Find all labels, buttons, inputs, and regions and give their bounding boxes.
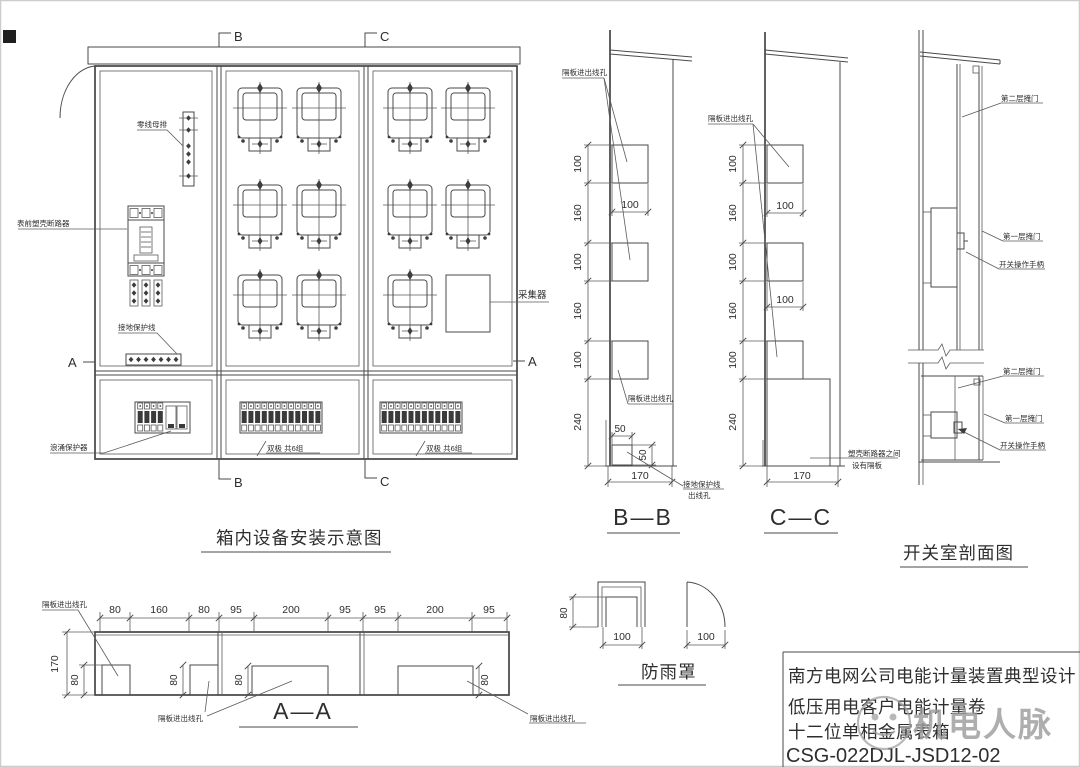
section-flag-top-b: B bbox=[219, 29, 243, 47]
handle-top-label: 开关操作手柄 bbox=[999, 259, 1044, 269]
cc-hole-2 bbox=[767, 243, 803, 281]
marker-top-b: B bbox=[234, 29, 243, 44]
bb-title: B—B bbox=[613, 504, 673, 530]
collector-callout: 采集器 bbox=[490, 289, 549, 302]
section-aa-view: 80 160 80 95 200 95 95 200 95 170 80 80 bbox=[42, 599, 586, 727]
section-flag-top-c: C bbox=[365, 29, 389, 47]
cc-dim-base: 170 bbox=[764, 466, 841, 487]
section-cc-view: 100 160 100 160 100 240 100 100 170 隔板进出… bbox=[708, 32, 901, 533]
rc-dim-100-right: 100 bbox=[684, 630, 728, 649]
aa-dim-4: 200 bbox=[282, 604, 300, 616]
aa-dim-3: 95 bbox=[230, 604, 242, 616]
cc-label-top: 隔板进出线孔 bbox=[708, 113, 753, 123]
aa-title: A—A bbox=[273, 698, 333, 724]
surge-label: 浪涌保护器 bbox=[50, 442, 88, 452]
aa-dim-1: 160 bbox=[150, 604, 168, 616]
cc-dim-v2: 100 bbox=[727, 253, 739, 271]
cc-note: 塑壳断路器之间 设有隔板 bbox=[810, 448, 901, 470]
breaker-row-right bbox=[380, 402, 462, 433]
cc-dim-v3: 160 bbox=[727, 302, 739, 320]
cabinet-top-cap bbox=[88, 47, 520, 64]
cc-hole-3 bbox=[767, 341, 803, 379]
aa-hole-2 bbox=[190, 665, 218, 695]
cc-breaker-box bbox=[767, 379, 830, 466]
aa-label-bottom-right: 隔板进出线孔 bbox=[530, 713, 575, 723]
rain-cover-view: 80 100 100 防雨罩 bbox=[559, 582, 728, 685]
aa-dim-7: 200 bbox=[426, 604, 444, 616]
bb-label-top: 隔板进出线孔 bbox=[562, 67, 607, 77]
bb-dim-base: 170 bbox=[631, 470, 649, 482]
aa-dim-80-h4: 80 bbox=[480, 674, 491, 686]
cc-dim-v0: 100 bbox=[727, 155, 739, 173]
handle-bot-label: 开关操作手柄 bbox=[1000, 440, 1045, 450]
title-block-line1: 南方电网公司电能计量装置典型设计 bbox=[788, 666, 1076, 686]
bb-dim-w: 100 bbox=[621, 199, 639, 211]
section-marker-a-left: A bbox=[68, 355, 95, 370]
aa-left-dims: 170 80 bbox=[49, 629, 102, 698]
rc-dim-w-left: 100 bbox=[613, 631, 631, 643]
sw-callout-door2-bot: 第二层掩门 bbox=[958, 366, 1044, 388]
aa-box bbox=[95, 632, 509, 695]
aa-dim-8: 95 bbox=[483, 604, 495, 616]
drawing-canvas: B C 零线母排 bbox=[0, 0, 1080, 767]
cc-hole-1 bbox=[767, 145, 803, 183]
aa-dim-80-h2: 80 bbox=[169, 674, 180, 686]
aa-dim-2: 80 bbox=[198, 604, 210, 616]
bb-hole-1 bbox=[612, 145, 648, 183]
aa-dim-80-left: 80 bbox=[70, 674, 81, 686]
aa-hole-4 bbox=[398, 666, 473, 695]
watermark-text: 机电人脉 bbox=[913, 706, 1053, 743]
door1-top-label: 第一层掩门 bbox=[1003, 231, 1041, 241]
neutral-busbar-callout: 零线母排 bbox=[137, 119, 183, 146]
rain-cover-title: 防雨罩 bbox=[641, 662, 697, 682]
aa-label-top: 隔板进出线孔 bbox=[42, 599, 87, 609]
aa-dim-0: 80 bbox=[109, 604, 121, 616]
rc-dim-80: 80 bbox=[559, 594, 606, 630]
bb-dim-base: 170 bbox=[605, 466, 675, 487]
cc-note-2: 设有隔板 bbox=[852, 460, 882, 470]
cc-dim-w1: 100 bbox=[776, 200, 794, 212]
section-flag-bottom-b: B bbox=[219, 459, 243, 490]
collector-label: 采集器 bbox=[518, 289, 547, 301]
mccb-label: 表前塑壳断路器 bbox=[17, 218, 70, 228]
ground-wire-label: 接地保护线 bbox=[118, 322, 156, 332]
bb-dim-50v: 50 bbox=[638, 449, 649, 461]
breaker-right-label: 双极 共6组 bbox=[426, 443, 463, 453]
sw-callout-handle-top: 开关操作手柄 bbox=[966, 252, 1045, 269]
aa-top-dims: 80 160 80 95 200 95 95 200 95 bbox=[97, 604, 510, 632]
aa-dim-80-h3: 80 bbox=[234, 674, 245, 686]
cc-dim-w2: 100 bbox=[776, 294, 794, 306]
marker-top-c: C bbox=[380, 29, 389, 44]
ground-wire-callout: 接地保护线 bbox=[118, 322, 177, 354]
bb-hole-2 bbox=[612, 243, 648, 281]
switch-room-title: 开关室剖面图 bbox=[903, 543, 1014, 563]
bb-label-bottom-2: 出线孔 bbox=[688, 490, 711, 500]
surge-callout: 浪涌保护器 bbox=[50, 431, 171, 453]
aa-callout-bottom-right: 隔板进出线孔 bbox=[467, 681, 586, 723]
cc-title: C—C bbox=[770, 504, 832, 530]
rc-dim-h: 80 bbox=[559, 607, 570, 619]
switch-room-view: 第二层掩门 第一层掩门 开关操作手柄 第二层掩门 第一层掩门 开关操作手柄 bbox=[900, 30, 1046, 567]
door2-bot-label: 第二层掩门 bbox=[1003, 366, 1041, 376]
sw-callout-handle-bot: 开关操作手柄 bbox=[958, 428, 1046, 450]
main-front-view: B C 零线母排 bbox=[17, 29, 549, 552]
rc-dim-100-left: 100 bbox=[600, 627, 645, 649]
mccb-device bbox=[128, 206, 164, 306]
rc-door-arc bbox=[687, 582, 725, 627]
rc-dim-w-right: 100 bbox=[697, 631, 715, 643]
door2-top-label: 第二层掩门 bbox=[1001, 93, 1039, 103]
ground-bar bbox=[126, 354, 181, 365]
cc-dim-base: 170 bbox=[793, 470, 811, 482]
marker-bottom-c: C bbox=[380, 474, 389, 489]
section-bb-view: 100 160 100 160 100 240 100 50 50 bbox=[562, 30, 724, 533]
aa-label-bottom: 隔板进出线孔 bbox=[158, 713, 203, 723]
switch-device-lower bbox=[923, 412, 962, 438]
section-flag-bottom-c: C bbox=[365, 459, 389, 489]
bb-dim-v5: 240 bbox=[572, 413, 584, 431]
sw-callout-door1-bot: 第一层掩门 bbox=[984, 413, 1044, 423]
cc-dim-chain: 100 160 100 160 100 240 bbox=[727, 142, 767, 469]
aa-dim-5: 95 bbox=[339, 604, 351, 616]
cc-dim-v1: 160 bbox=[727, 204, 739, 222]
bb-ground-hole bbox=[612, 445, 632, 465]
bb-dim-50h: 50 bbox=[614, 424, 626, 435]
bb-label-mid: 隔板进出线孔 bbox=[628, 393, 673, 403]
aa-hole-3 bbox=[252, 666, 328, 695]
bb-dim-v3: 160 bbox=[572, 302, 584, 320]
cc-note-1: 塑壳断路器之间 bbox=[848, 448, 901, 458]
door-swing-arc bbox=[60, 66, 97, 118]
aa-dim-170: 170 bbox=[49, 655, 61, 673]
neutral-busbar bbox=[179, 112, 198, 186]
cad-drawing: B C 零线母排 bbox=[0, 0, 1080, 767]
marker-right-a: A bbox=[528, 354, 537, 369]
cc-callout-top: 隔板进出线孔 bbox=[708, 113, 789, 357]
aa-inner-dims: 80 80 80 bbox=[169, 662, 491, 698]
bb-hole-3 bbox=[612, 341, 648, 379]
aa-dim-6: 95 bbox=[374, 604, 386, 616]
sw-callout-door2-top: 第二层掩门 bbox=[962, 93, 1043, 117]
bb-dim-v2: 100 bbox=[572, 253, 584, 271]
aa-hole-1 bbox=[102, 665, 130, 695]
door1-bot-label: 第一层掩门 bbox=[1005, 413, 1043, 423]
corner-artifact bbox=[3, 30, 16, 43]
bb-label-bottom-1: 接地保护线 bbox=[683, 479, 721, 489]
b​b-dim-width: 100 bbox=[609, 184, 651, 216]
aa-callout-bottom: 隔板进出线孔 bbox=[158, 681, 292, 723]
cc-dim-v5: 240 bbox=[727, 413, 739, 431]
bb-dim-v0: 100 bbox=[572, 155, 584, 173]
bb-dim-v4: 100 bbox=[572, 351, 584, 369]
switch-device-upper bbox=[923, 208, 968, 287]
marker-bottom-b: B bbox=[234, 475, 243, 490]
surge-protector bbox=[135, 402, 190, 433]
main-view-title: 箱内设备安装示意图 bbox=[216, 528, 383, 548]
collector-box bbox=[446, 275, 490, 332]
sw-callout-door1-top: 第一层掩门 bbox=[982, 231, 1043, 241]
bb-callout-mid: 隔板进出线孔 bbox=[618, 370, 673, 404]
bb-dim-v1: 160 bbox=[572, 204, 584, 222]
breaker-mid-label: 双极 共6组 bbox=[267, 443, 304, 453]
marker-left-a: A bbox=[68, 355, 77, 370]
cc-dim-v4: 100 bbox=[727, 351, 739, 369]
breaker-row-mid bbox=[240, 402, 322, 433]
mccb-callout: 表前塑壳断路器 bbox=[17, 218, 127, 229]
neutral-busbar-label: 零线母排 bbox=[137, 119, 167, 129]
